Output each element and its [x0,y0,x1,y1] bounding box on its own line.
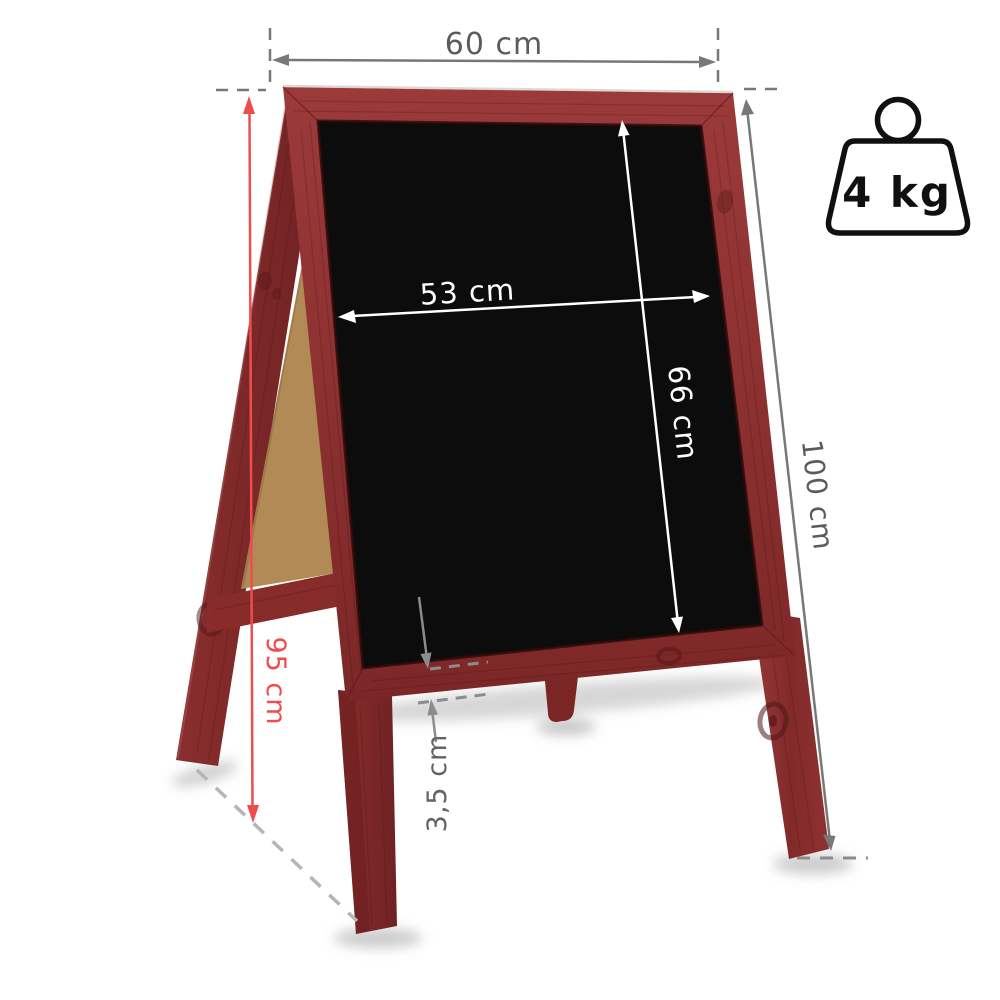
dimension-outer-width: 60 cm [216,27,780,91]
product-diagram: 60 cm 53 cm 66 cm 100 cm 95 cm 3,5 cm [0,0,1000,1000]
dim-total-height-label: 100 cm [795,438,840,552]
weight-label: 4 kg [842,168,952,217]
weight-handle [878,100,919,141]
dim-side-height-label: 95 cm [260,636,291,725]
chalkboard-diagram-svg: 60 cm 53 cm 66 cm 100 cm 95 cm 3,5 cm [0,0,1000,1000]
weight-badge: 4 kg [828,100,967,234]
dim-outer-width-label: 60 cm [445,27,543,62]
dim-writable-width-label: 53 cm [419,272,516,311]
ground-dash-line [197,770,357,921]
dim-frame-thickness-label: 3,5 cm [422,734,453,833]
chalkboard [283,86,795,701]
